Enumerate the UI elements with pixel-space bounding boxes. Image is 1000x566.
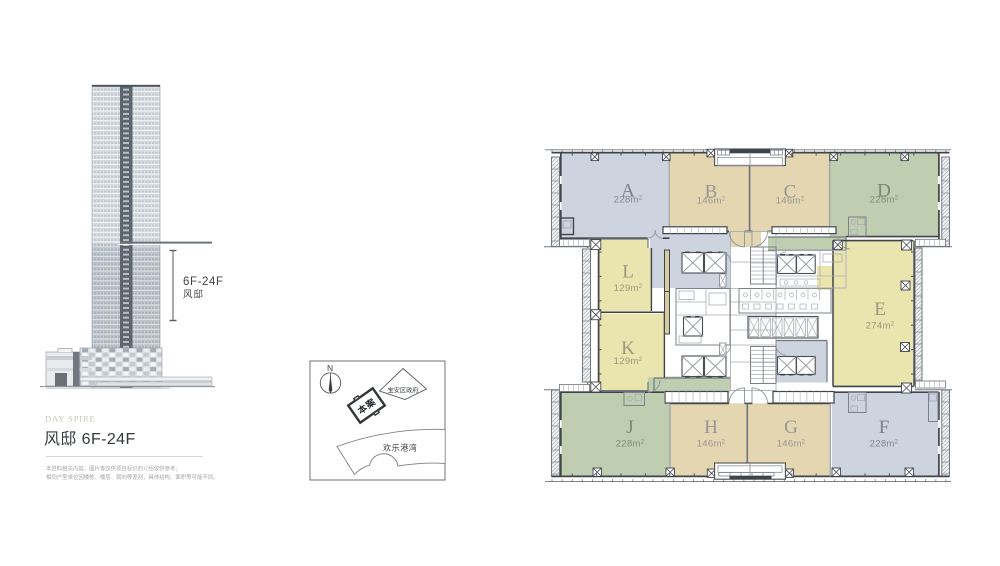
svg-text:J: J bbox=[626, 417, 633, 438]
svg-text:相同户型单位因楼栋、楼层、朝向等差别，具体结构、面积等可能不: 相同户型单位因楼栋、楼层、朝向等差别，具体结构、面积等可能不同。 bbox=[46, 473, 219, 481]
svg-text:宝安区政府: 宝安区政府 bbox=[388, 387, 419, 395]
svg-text:风邸: 风邸 bbox=[183, 290, 204, 301]
svg-text:228m2: 228m2 bbox=[616, 439, 645, 450]
svg-text:228m2: 228m2 bbox=[870, 195, 899, 206]
svg-text:E: E bbox=[874, 299, 886, 320]
svg-text:228m2: 228m2 bbox=[614, 195, 643, 206]
svg-text:H: H bbox=[704, 417, 718, 438]
svg-text:6F-24F: 6F-24F bbox=[183, 276, 224, 288]
svg-text:欢乐港湾: 欢乐港湾 bbox=[383, 443, 417, 453]
svg-text:F: F bbox=[879, 417, 890, 438]
svg-text:146m2: 146m2 bbox=[697, 439, 726, 450]
svg-text:风邸 6F-24F: 风邸 6F-24F bbox=[44, 430, 136, 448]
svg-text:G: G bbox=[784, 417, 798, 438]
svg-text:146m2: 146m2 bbox=[697, 196, 726, 207]
svg-text:146m2: 146m2 bbox=[777, 439, 806, 450]
svg-text:N: N bbox=[327, 363, 333, 373]
svg-text:L: L bbox=[622, 262, 634, 283]
svg-text:146m2: 146m2 bbox=[776, 196, 805, 207]
svg-text:本资料相关内容，图片等仅供项目标识的介绍仅供参考；: 本资料相关内容，图片等仅供项目标识的介绍仅供参考； bbox=[46, 465, 181, 473]
svg-text:228m2: 228m2 bbox=[870, 439, 899, 450]
svg-text:129m2: 129m2 bbox=[614, 356, 643, 367]
svg-text:DAY SPIRE: DAY SPIRE bbox=[45, 414, 96, 424]
svg-text:274m2: 274m2 bbox=[866, 321, 895, 332]
svg-text:129m2: 129m2 bbox=[614, 283, 643, 294]
